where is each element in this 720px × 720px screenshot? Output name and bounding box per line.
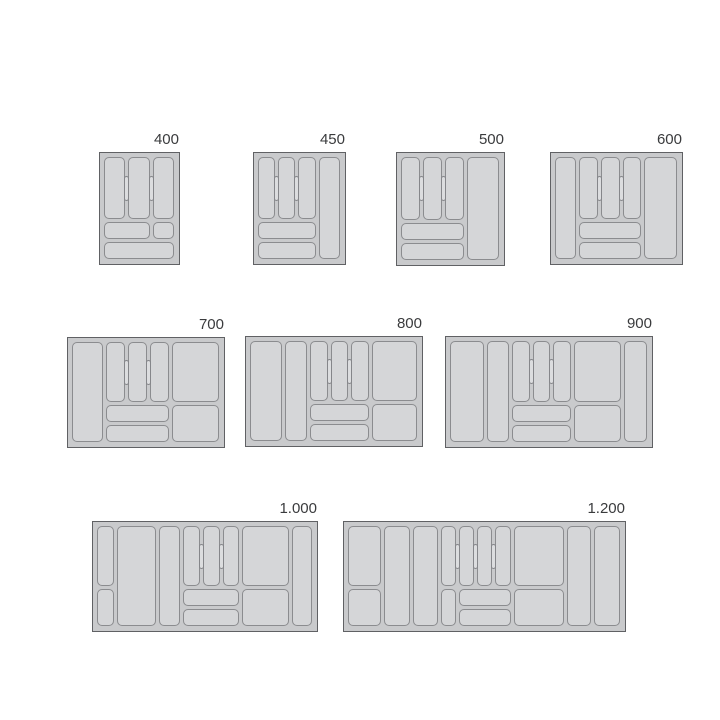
cutlery-tray-diagram: 4004505006007008009001.0001.200 xyxy=(0,0,720,720)
tray-size-label: 600 xyxy=(657,131,682,148)
tray-900: 900 xyxy=(445,336,653,448)
compartment xyxy=(242,589,289,626)
compartment xyxy=(298,157,315,219)
compartment xyxy=(97,589,114,626)
compartment xyxy=(555,157,576,259)
divider-pill xyxy=(146,360,151,385)
tray-700: 700 xyxy=(67,337,225,448)
compartment xyxy=(183,609,239,626)
compartment xyxy=(579,157,598,219)
compartment xyxy=(441,526,456,586)
compartment xyxy=(223,526,240,586)
compartment xyxy=(372,404,417,441)
divider-pill xyxy=(597,176,602,201)
tray-size-label: 700 xyxy=(199,316,224,333)
compartment xyxy=(106,342,125,402)
compartment xyxy=(514,589,564,626)
compartment xyxy=(579,242,641,259)
compartment xyxy=(104,222,150,239)
compartment xyxy=(553,341,571,402)
compartment xyxy=(445,157,464,220)
tray-size-label: 1.200 xyxy=(587,500,625,517)
compartment xyxy=(106,405,169,422)
tray-size-label: 800 xyxy=(397,315,422,332)
compartment xyxy=(153,157,174,219)
compartment xyxy=(624,341,647,442)
compartment xyxy=(258,157,275,219)
tray-size-label: 900 xyxy=(627,315,652,332)
compartment xyxy=(401,157,420,220)
compartment xyxy=(512,405,571,422)
divider-pill xyxy=(619,176,624,201)
divider-pill xyxy=(219,544,224,569)
tray-500: 500 xyxy=(396,152,505,266)
compartment xyxy=(183,526,200,586)
compartment xyxy=(117,526,155,626)
compartment xyxy=(459,609,511,626)
compartment xyxy=(97,526,114,586)
divider-pill xyxy=(124,360,129,385)
divider-pill xyxy=(455,544,460,569)
compartment xyxy=(310,341,328,401)
divider-pill xyxy=(274,176,279,201)
compartment xyxy=(459,589,511,606)
compartment xyxy=(292,526,312,626)
compartment xyxy=(644,157,677,259)
compartment xyxy=(467,157,499,260)
compartment xyxy=(450,341,484,442)
compartment xyxy=(413,526,437,626)
compartment xyxy=(441,589,456,626)
compartment xyxy=(159,526,181,626)
compartment xyxy=(495,526,510,586)
compartment xyxy=(278,157,295,219)
compartment xyxy=(104,242,174,259)
compartment xyxy=(401,223,464,240)
compartment xyxy=(601,157,620,219)
compartment xyxy=(285,341,307,441)
compartment xyxy=(310,404,369,421)
compartment xyxy=(574,405,621,442)
compartment xyxy=(487,341,509,442)
tray-1.200: 1.200 xyxy=(343,521,626,632)
compartment xyxy=(348,589,381,626)
compartment xyxy=(514,526,564,586)
compartment xyxy=(372,341,417,401)
compartment xyxy=(258,242,316,259)
compartment xyxy=(401,243,464,260)
tray-size-label: 500 xyxy=(479,131,504,148)
compartment xyxy=(250,341,282,441)
compartment xyxy=(574,341,621,402)
tray-600: 600 xyxy=(550,152,683,265)
compartment xyxy=(348,526,381,586)
tray-400: 400 xyxy=(99,152,180,265)
compartment xyxy=(242,526,289,586)
tray-size-label: 1.000 xyxy=(279,500,317,517)
compartment xyxy=(258,222,316,239)
divider-pill xyxy=(149,176,154,201)
tray-800: 800 xyxy=(245,336,423,447)
divider-pill xyxy=(491,544,496,569)
compartment xyxy=(172,342,219,402)
compartment xyxy=(310,424,369,441)
divider-pill xyxy=(419,176,424,201)
compartment xyxy=(203,526,220,586)
divider-pill xyxy=(124,176,129,201)
compartment xyxy=(477,526,492,586)
compartment xyxy=(331,341,349,401)
compartment xyxy=(319,157,340,259)
compartment xyxy=(512,341,530,402)
compartment xyxy=(104,157,125,219)
compartment xyxy=(384,526,410,626)
compartment xyxy=(172,405,219,442)
compartment xyxy=(72,342,103,442)
divider-pill xyxy=(529,359,534,384)
compartment xyxy=(106,425,169,442)
compartment xyxy=(153,222,174,239)
compartment xyxy=(623,157,642,219)
tray-450: 450 xyxy=(253,152,346,265)
divider-pill xyxy=(347,359,352,384)
divider-pill xyxy=(294,176,299,201)
compartment xyxy=(128,342,147,402)
compartment xyxy=(150,342,169,402)
divider-pill xyxy=(473,544,478,569)
tray-1.000: 1.000 xyxy=(92,521,318,632)
compartment xyxy=(128,157,149,219)
compartment xyxy=(423,157,442,220)
tray-size-label: 450 xyxy=(320,131,345,148)
compartment xyxy=(579,222,641,239)
compartment xyxy=(533,341,551,402)
compartment xyxy=(512,425,571,442)
compartment xyxy=(567,526,591,626)
tray-size-label: 400 xyxy=(154,131,179,148)
divider-pill xyxy=(441,176,446,201)
compartment xyxy=(459,526,474,586)
compartment xyxy=(594,526,620,626)
divider-pill xyxy=(199,544,204,569)
compartment xyxy=(183,589,239,606)
divider-pill xyxy=(549,359,554,384)
divider-pill xyxy=(327,359,332,384)
compartment xyxy=(351,341,369,401)
